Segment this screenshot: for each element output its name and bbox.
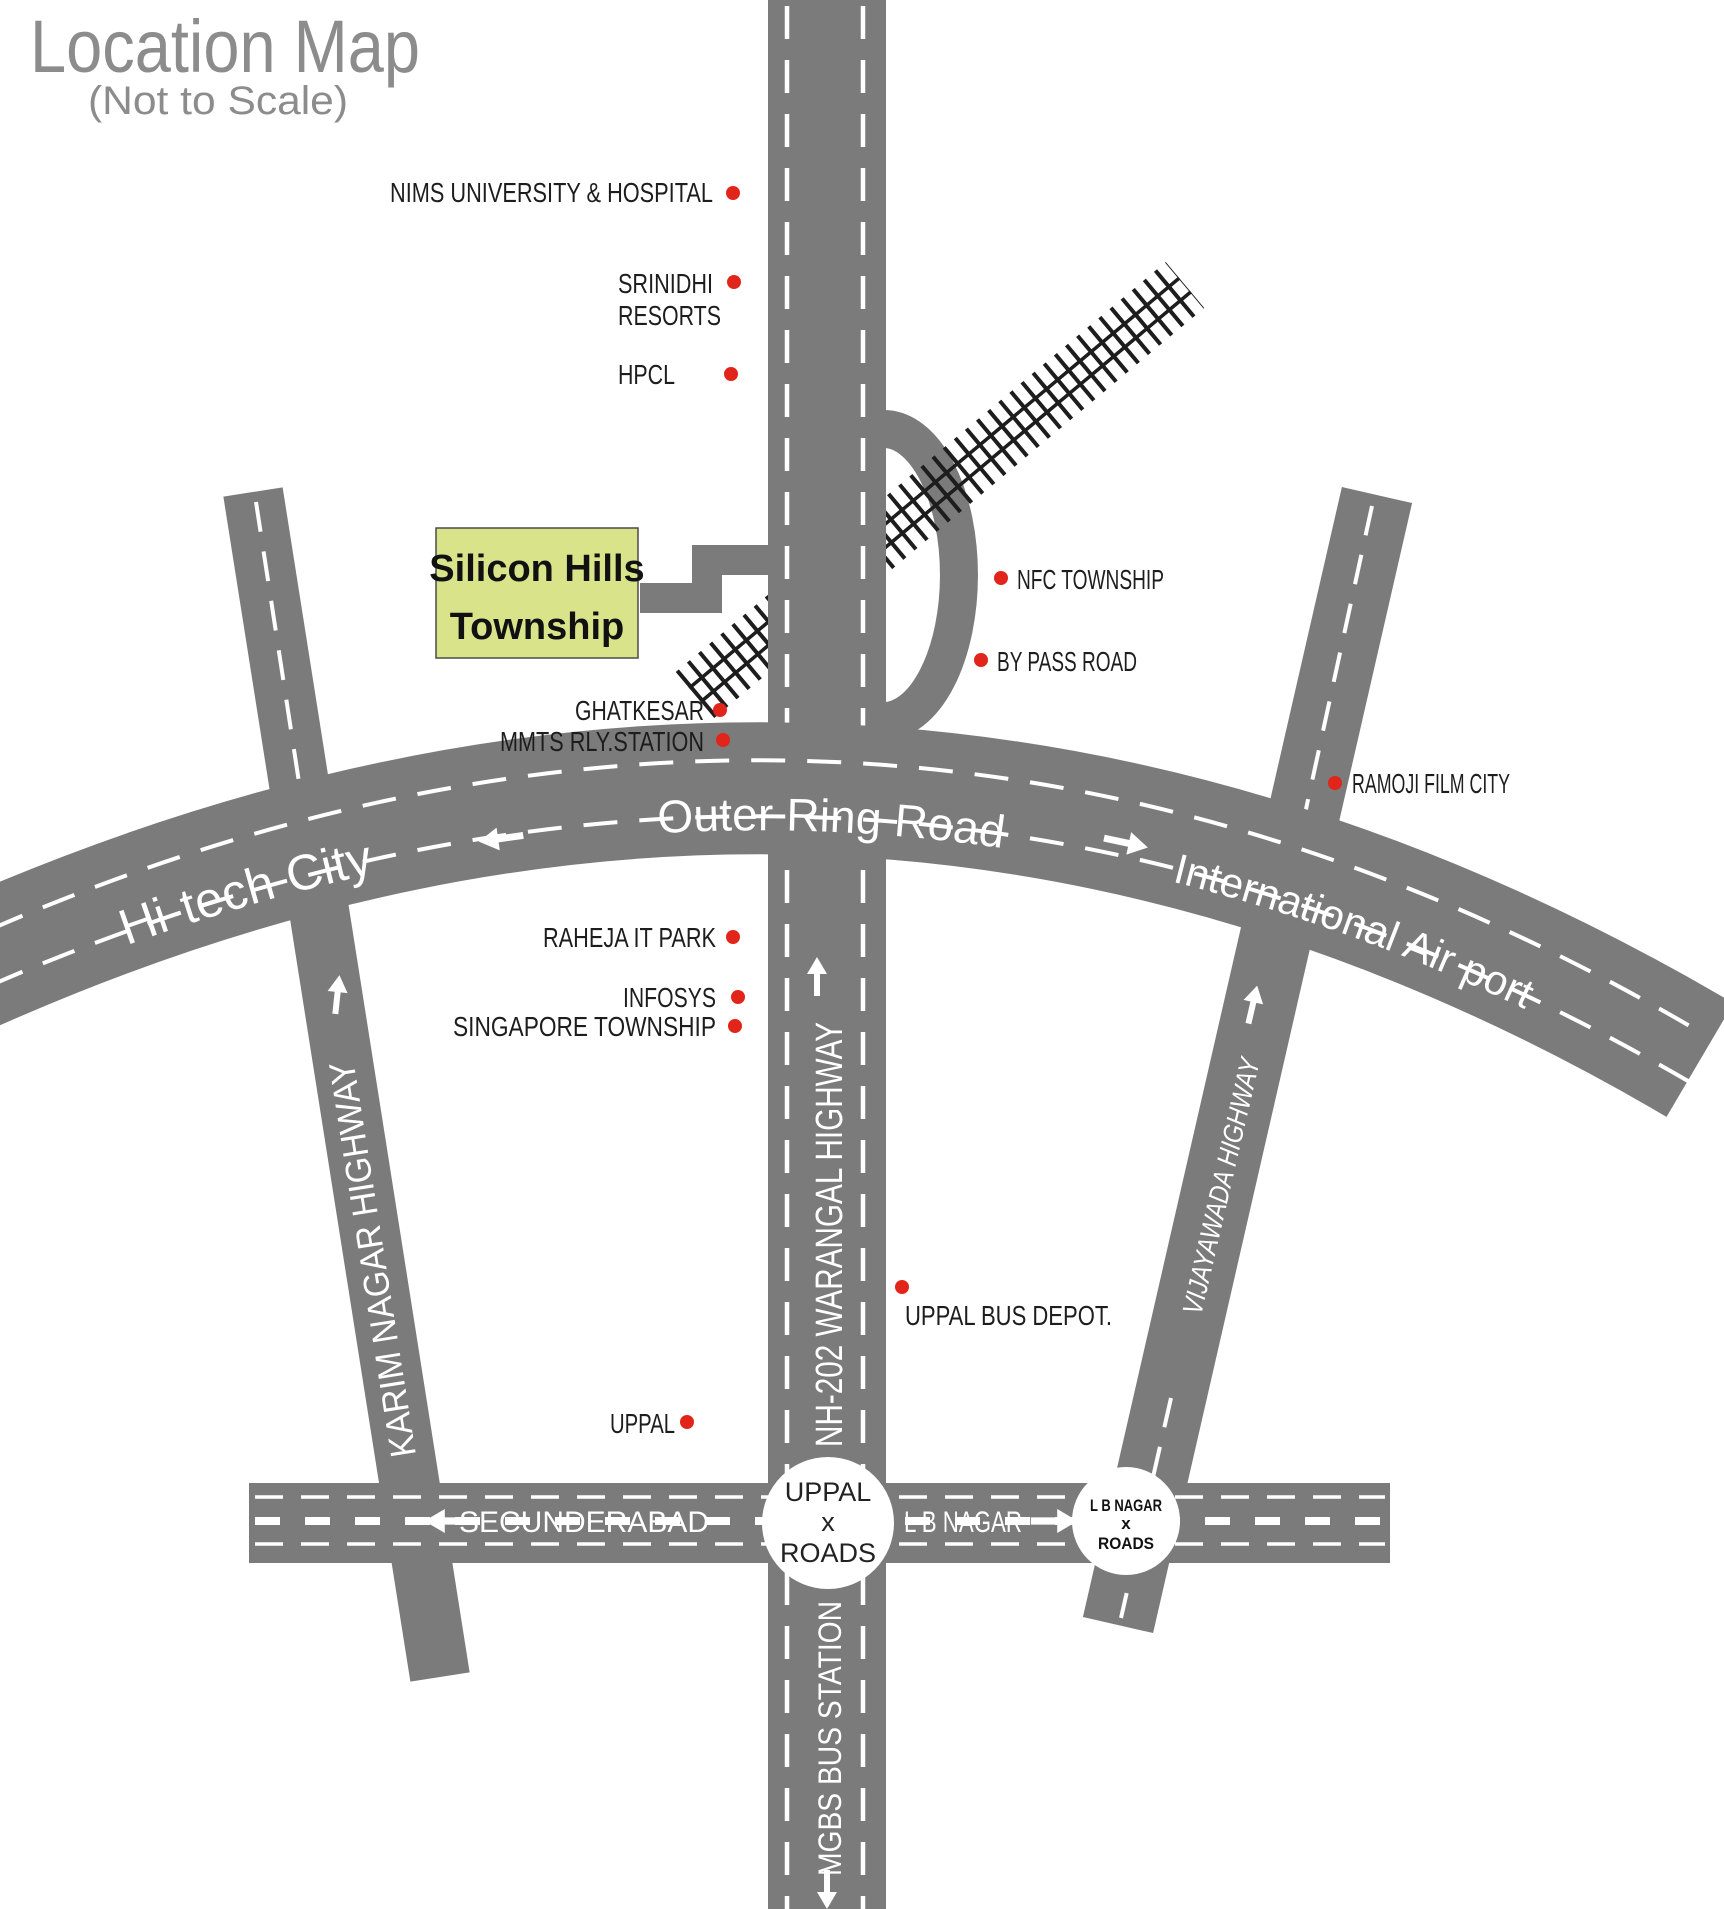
nims-label: NIMS UNIVERSITY & HOSPITAL <box>390 177 713 208</box>
bypass-road-label: BY PASS ROAD <box>997 646 1137 677</box>
mmts-dot <box>716 733 730 747</box>
road-label-secunderabad: SECUNDERABAD <box>459 1506 709 1539</box>
ghatkesar-dot <box>713 703 727 717</box>
ghatkesar-label: GHATKESAR <box>575 695 704 726</box>
page-subtitle: (Not to Scale) <box>88 79 348 123</box>
srinidhi-label-line2: RESORTS <box>618 300 721 331</box>
nfc-township-label: NFC TOWNSHIP <box>1017 564 1164 595</box>
township-name-line1: Silicon Hills <box>429 548 644 590</box>
uppal-bus-depot-label: UPPAL BUS DEPOT. <box>905 1300 1112 1331</box>
raheja-label: RAHEJA IT PARK <box>543 922 716 953</box>
uppal-dot <box>680 1415 694 1429</box>
raheja-dot <box>726 930 740 944</box>
uppal-x-roads-line3: ROADS <box>780 1538 876 1568</box>
lb-nagar-x-roads-line2: x <box>1121 1514 1131 1533</box>
location-map: Outer Ring Road Hi-tech City Internation… <box>0 0 1724 1909</box>
infosys-label: INFOSYS <box>623 982 716 1013</box>
lb-nagar-x-roads-line3: ROADS <box>1098 1534 1154 1553</box>
ramoji-dot <box>1328 776 1342 790</box>
road-label-mgbs: MGBS BUS STATION <box>812 1601 848 1876</box>
infosys-dot <box>731 990 745 1004</box>
uppal-label: UPPAL <box>610 1408 675 1439</box>
mmts-label: MMTS RLY.STATION <box>500 726 704 757</box>
uppal-bus-depot-dot <box>895 1280 909 1294</box>
road-label-lb-nagar: L B NAGAR <box>904 1506 1022 1539</box>
ramoji-label: RAMOJI FILM CITY <box>1352 768 1510 799</box>
srinidhi-dot <box>727 275 741 289</box>
hpcl-dot <box>724 367 738 381</box>
uppal-x-roads-line2: x <box>821 1507 835 1537</box>
nims-dot <box>726 186 740 200</box>
page-title: Location Map <box>30 5 420 88</box>
nfc-township-dot <box>994 571 1008 585</box>
township-connector-road <box>640 560 772 598</box>
singapore-dot <box>728 1019 742 1033</box>
bypass-road-dot <box>974 653 988 667</box>
hpcl-label: HPCL <box>618 359 675 390</box>
township-name-line2: Township <box>450 606 625 648</box>
singapore-label: SINGAPORE TOWNSHIP <box>453 1011 716 1042</box>
location-map-page: Outer Ring Road Hi-tech City Internation… <box>0 0 1724 1909</box>
railway-rail-top <box>689 278 1179 688</box>
road-label-nh202: NH-202 WARANGAL HIGHWAY <box>809 1022 851 1447</box>
uppal-x-roads-line1: UPPAL <box>785 1477 872 1507</box>
srinidhi-label-line1: SRINIDHI <box>618 268 713 299</box>
lb-nagar-x-roads-line1: L B NAGAR <box>1090 1496 1162 1515</box>
